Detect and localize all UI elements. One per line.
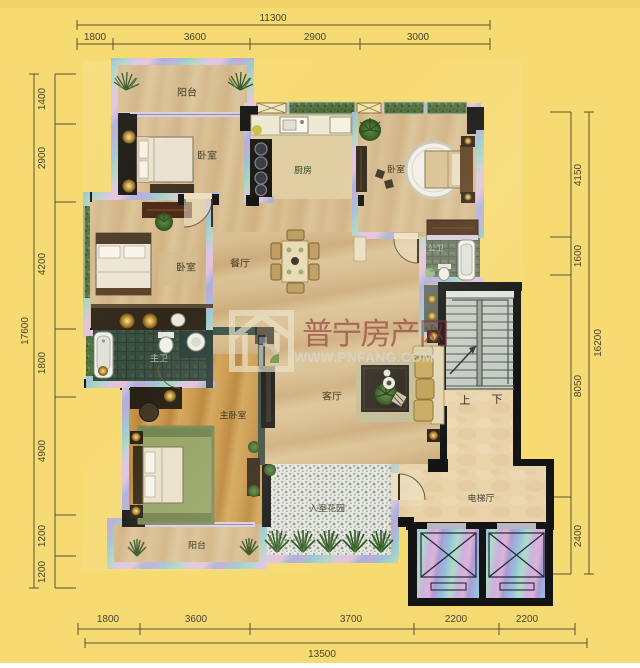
svg-text:2200: 2200 <box>516 614 539 625</box>
svg-text:2900: 2900 <box>37 146 48 169</box>
svg-text:3600: 3600 <box>184 32 207 43</box>
svg-text:17600: 17600 <box>20 317 31 345</box>
svg-text:8050: 8050 <box>573 374 584 397</box>
svg-text:3600: 3600 <box>185 614 208 625</box>
svg-text:16200: 16200 <box>593 329 604 357</box>
svg-text:1400: 1400 <box>37 87 48 110</box>
svg-text:1200: 1200 <box>37 560 48 583</box>
svg-text:11300: 11300 <box>259 13 287 24</box>
svg-text:4200: 4200 <box>37 252 48 275</box>
svg-text:1800: 1800 <box>37 351 48 374</box>
svg-text:2900: 2900 <box>304 32 327 43</box>
svg-text:3700: 3700 <box>340 614 363 625</box>
svg-text:3000: 3000 <box>407 32 430 43</box>
svg-text:1200: 1200 <box>37 524 48 547</box>
svg-text:1800: 1800 <box>84 32 107 43</box>
svg-text:2400: 2400 <box>573 524 584 547</box>
svg-text:4900: 4900 <box>37 439 48 462</box>
svg-text:WWW.PNFANG.COM: WWW.PNFANG.COM <box>294 350 434 365</box>
svg-text:2200: 2200 <box>445 614 468 625</box>
svg-text:1800: 1800 <box>97 614 120 625</box>
svg-text:13500: 13500 <box>308 649 336 660</box>
svg-text:4150: 4150 <box>573 163 584 186</box>
svg-text:1600: 1600 <box>573 244 584 267</box>
